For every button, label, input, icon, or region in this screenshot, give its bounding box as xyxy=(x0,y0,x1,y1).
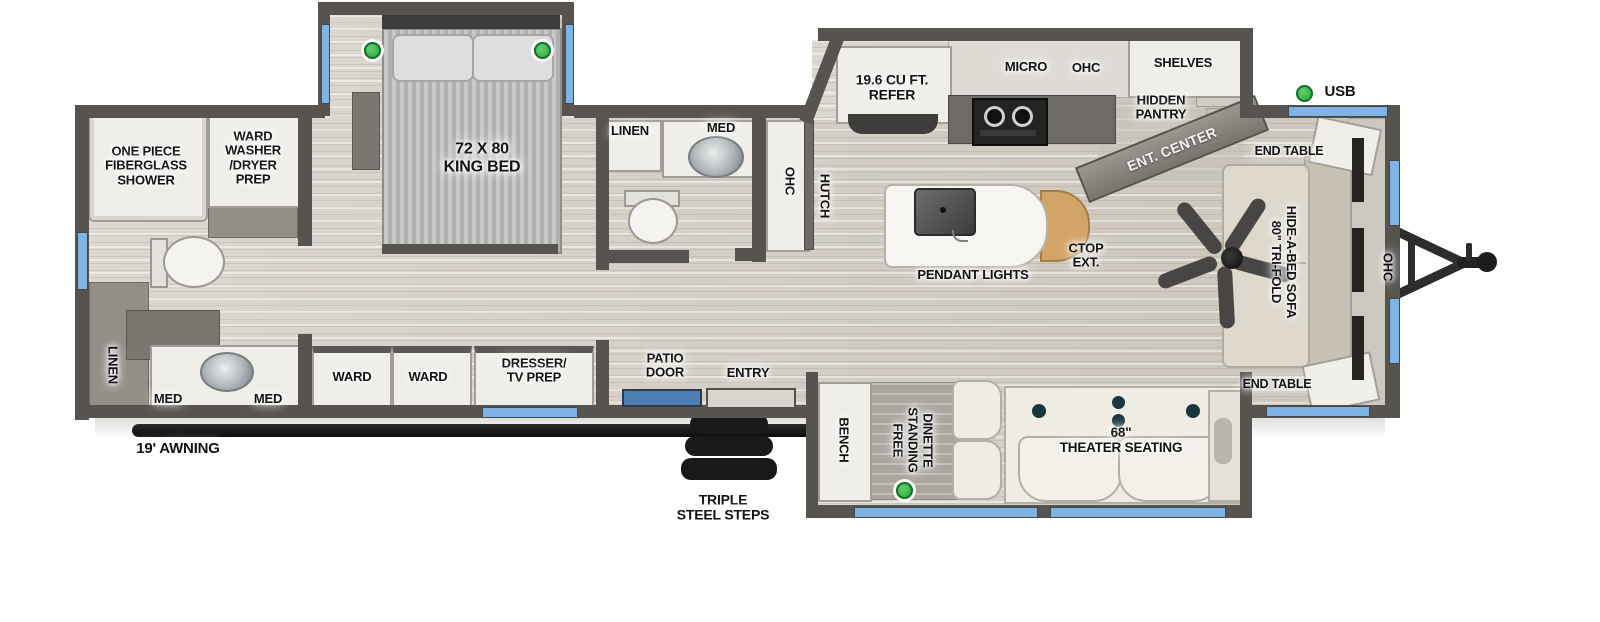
mid-linen-label: LINEN xyxy=(611,124,649,138)
ward-left-label: WARD xyxy=(333,370,372,384)
usb-legend-label: USB xyxy=(1324,84,1355,101)
dinette-label: FREE STANDING DINETTE xyxy=(890,407,935,472)
theater-armrest-tray xyxy=(1214,418,1232,464)
hitch-tongue xyxy=(1392,215,1507,311)
front-ohc-door-1 xyxy=(1352,138,1364,202)
front-ohc-label: OHC xyxy=(1380,253,1395,281)
theater-cupholder-right xyxy=(1186,404,1200,418)
hutch-label: HUTCH xyxy=(817,174,832,219)
dinette-slide-wall-left xyxy=(806,372,818,518)
usb-legend-dot xyxy=(1296,85,1313,102)
bath-bedroom-wall-upper xyxy=(298,118,312,246)
sofa-label: 80" TRI-FOLD HIDE-A-BED SOFA xyxy=(1268,206,1298,319)
entry-label: ENTRY xyxy=(727,366,770,380)
mid-toilet xyxy=(628,198,678,244)
awning-label: 19' AWNING xyxy=(136,441,220,458)
patio-door-label: PATIO DOOR xyxy=(646,352,684,381)
bedroom-tv-panel xyxy=(352,92,380,170)
bed-headboard xyxy=(382,15,560,29)
pendant-lights-label: PENDANT LIGHTS xyxy=(917,268,1028,282)
bath-bedroom-wall-lower xyxy=(298,334,312,407)
cooktop-control-strip xyxy=(980,130,1036,136)
window-dinette-slide-left xyxy=(854,507,1038,518)
hidden-pantry-label: HIDDEN PANTRY xyxy=(1136,94,1187,123)
hutch-counter-edge xyxy=(804,120,814,250)
window-top-front xyxy=(1288,106,1388,117)
dresser-label: DRESSER/ TV PREP xyxy=(502,357,567,386)
patio-door xyxy=(622,389,702,407)
entry-step-3 xyxy=(681,458,777,480)
front-ohc-door-3 xyxy=(1352,316,1364,380)
usb-dot-dinette xyxy=(896,482,913,499)
midbath-east-wall xyxy=(752,118,766,262)
fan-blade xyxy=(1217,266,1235,329)
top-wall-rear xyxy=(75,105,325,118)
island-sink-drain xyxy=(940,207,946,213)
window-front-wall-upper xyxy=(1389,160,1400,226)
fan-hub xyxy=(1221,247,1243,269)
rear-toilet xyxy=(163,236,225,288)
window-bed-slide-right xyxy=(565,24,574,104)
bench-label: BENCH xyxy=(836,417,851,462)
mid-med-label: MED xyxy=(707,121,735,135)
usb-dot-bed-left xyxy=(364,42,381,59)
cooktop-burner-left xyxy=(984,106,1005,127)
window-front-wall-lower xyxy=(1389,298,1400,364)
rear-bath-sink xyxy=(200,352,254,392)
entry-door xyxy=(706,388,796,409)
rear-linen-label: LINEN xyxy=(105,346,120,384)
bed-foot-rail xyxy=(382,244,558,254)
entry-step-2 xyxy=(685,436,773,456)
kitchen-slide-wall-top xyxy=(818,28,1252,41)
sofa-backrest xyxy=(1304,156,1352,376)
king-bed-label: 72 X 80 KING BED xyxy=(444,140,521,175)
refer-front xyxy=(848,114,938,134)
bed-pillow-left xyxy=(392,34,474,82)
rear-med-right-label: MED xyxy=(254,392,282,406)
ward-right-label: WARD xyxy=(409,370,448,384)
cooktop-burner-right xyxy=(1012,106,1033,127)
mid-bath-sink xyxy=(688,136,744,178)
steps-label: TRIPLE STEEL STEPS xyxy=(677,493,769,524)
window-dinette-slide-right xyxy=(1050,507,1226,518)
window-bottom-bedroom xyxy=(482,407,578,418)
front-ohc-door-2 xyxy=(1352,228,1364,292)
cooktop xyxy=(972,98,1048,146)
hall-ohc-label: OHC xyxy=(782,167,797,195)
theater-cupholder-mid-top xyxy=(1112,396,1125,409)
window-bottom-front xyxy=(1266,406,1370,417)
washer-dryer-cabinet-base xyxy=(208,204,298,238)
shelves-label: SHELVES xyxy=(1154,56,1212,70)
bed-slide-wall-top xyxy=(318,2,574,15)
floor-plan: 19' AWNING TRIPLE STEEL STEPS xyxy=(0,0,1600,622)
rear-med-left-label: MED xyxy=(154,392,182,406)
washer-dryer-label: WARD WASHER /DRYER PREP xyxy=(225,129,281,186)
micro-label: MICRO xyxy=(1005,60,1047,74)
ctop-ext-label: CTOP EXT. xyxy=(1068,242,1103,271)
usb-dot-bed-right xyxy=(534,42,551,59)
theater-cupholder-left xyxy=(1032,404,1046,418)
end-table-top-label: END TABLE xyxy=(1255,145,1324,159)
refer-label: 19.6 CU FT. REFER xyxy=(856,73,929,104)
dinette-chair-bottom xyxy=(952,440,1002,500)
dinette-slide-wall-right xyxy=(1240,372,1252,518)
window-bed-slide-left xyxy=(321,24,330,104)
midbath-south-wall xyxy=(609,250,689,263)
dinette-chair-top xyxy=(952,380,1002,440)
bedroom-midbath-wall-upper xyxy=(596,118,609,270)
shower-label: ONE PIECE FIBERGLASS SHOWER xyxy=(105,145,187,188)
end-table-bottom-label: END TABLE xyxy=(1243,378,1312,392)
kitchen-ohc-label: OHC xyxy=(1072,61,1100,75)
theater-label: 68" THEATER SEATING xyxy=(1060,426,1183,456)
window-left-wall xyxy=(77,232,88,290)
bedroom-midbath-wall-lower xyxy=(596,340,609,407)
top-wall-mid xyxy=(574,105,808,118)
